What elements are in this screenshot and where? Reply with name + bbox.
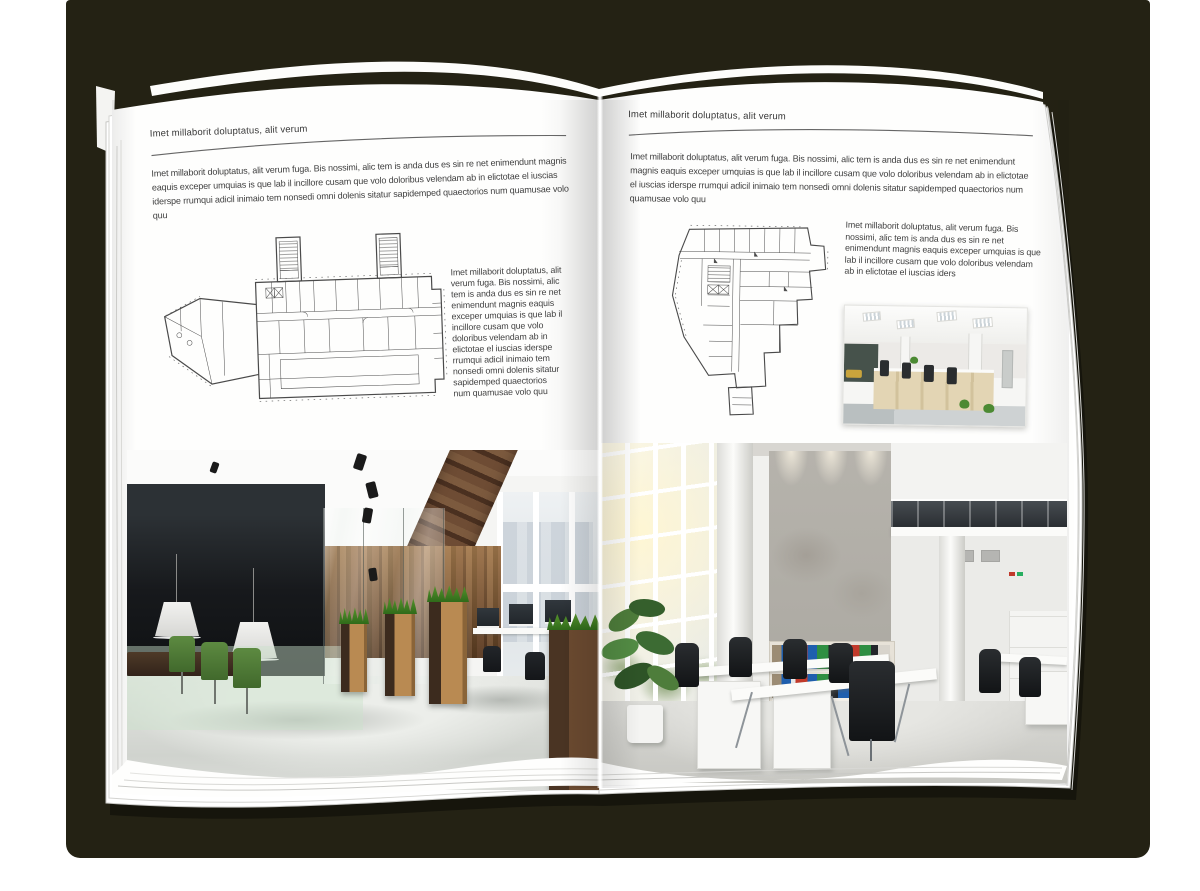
right-header-text: Imet millaborit doluptatus, alit verum (628, 109, 786, 122)
office-chair (947, 367, 957, 384)
office-photo-small (842, 305, 1028, 428)
pendant-lamp-cord (253, 568, 254, 622)
office-chair (783, 639, 807, 679)
floor-plan-right (652, 220, 836, 420)
magazine-mockup: Imet millaborit doluptatus, alit verum I… (0, 0, 1200, 891)
ceiling-spotlight (368, 568, 378, 582)
chair-leg (214, 680, 216, 704)
office-chair (924, 365, 934, 382)
lounge-seat (846, 370, 862, 378)
black-chair (525, 652, 545, 680)
green-chair (169, 636, 195, 672)
office-chair (675, 643, 699, 687)
chair-stem (870, 739, 872, 761)
office-photo-right (601, 443, 1067, 783)
office-chair (880, 360, 889, 376)
desk-panel (773, 687, 831, 769)
safety-sign (1009, 572, 1015, 576)
green-chair (201, 642, 228, 680)
wood-planter (385, 612, 415, 696)
air-vent (981, 550, 1000, 562)
wood-planter (429, 600, 467, 704)
small-plant (910, 357, 918, 364)
book-spine (560, 96, 640, 788)
office-chair (729, 637, 752, 677)
exit-sign (1017, 572, 1023, 576)
monitor (477, 608, 499, 628)
wood-planter (341, 622, 367, 692)
mezzanine-fascia (891, 527, 1067, 536)
right-page-header: Imet millaborit doluptatus, alit verum (628, 109, 1038, 143)
pendant-lamp (155, 602, 199, 636)
ceiling-light (862, 311, 881, 322)
office-chair (979, 649, 1001, 693)
black-chair (483, 646, 501, 672)
office-chair (902, 362, 911, 378)
photo-floor (601, 701, 1067, 783)
small-plant (983, 404, 994, 413)
concrete-feature-wall (769, 451, 893, 641)
door (1002, 350, 1014, 388)
office-chair (1019, 657, 1041, 697)
floor-plan-left (150, 223, 451, 425)
office-photo-left (127, 450, 599, 790)
ceiling-light (896, 319, 915, 330)
green-chair (233, 648, 261, 688)
right-intro-paragraph: Imet millaborit doluptatus, alit verum f… (630, 149, 1033, 211)
mezzanine (891, 443, 1067, 501)
ceiling-light (972, 317, 993, 329)
ceiling-light (936, 310, 957, 322)
office-chair-foreground (849, 661, 895, 741)
right-side-paragraph: Imet millaborit doluptatus, alit verum f… (844, 220, 1041, 282)
left-side-paragraph: Imet millaborit doluptatus, alit verum f… (450, 265, 565, 400)
glass-balustrade (891, 499, 1067, 529)
round-column (939, 536, 965, 716)
chair-leg (246, 688, 248, 714)
pendant-lamp-cord (176, 554, 177, 602)
small-plant (959, 399, 969, 408)
chair-leg (181, 672, 183, 694)
monitor (509, 604, 533, 626)
